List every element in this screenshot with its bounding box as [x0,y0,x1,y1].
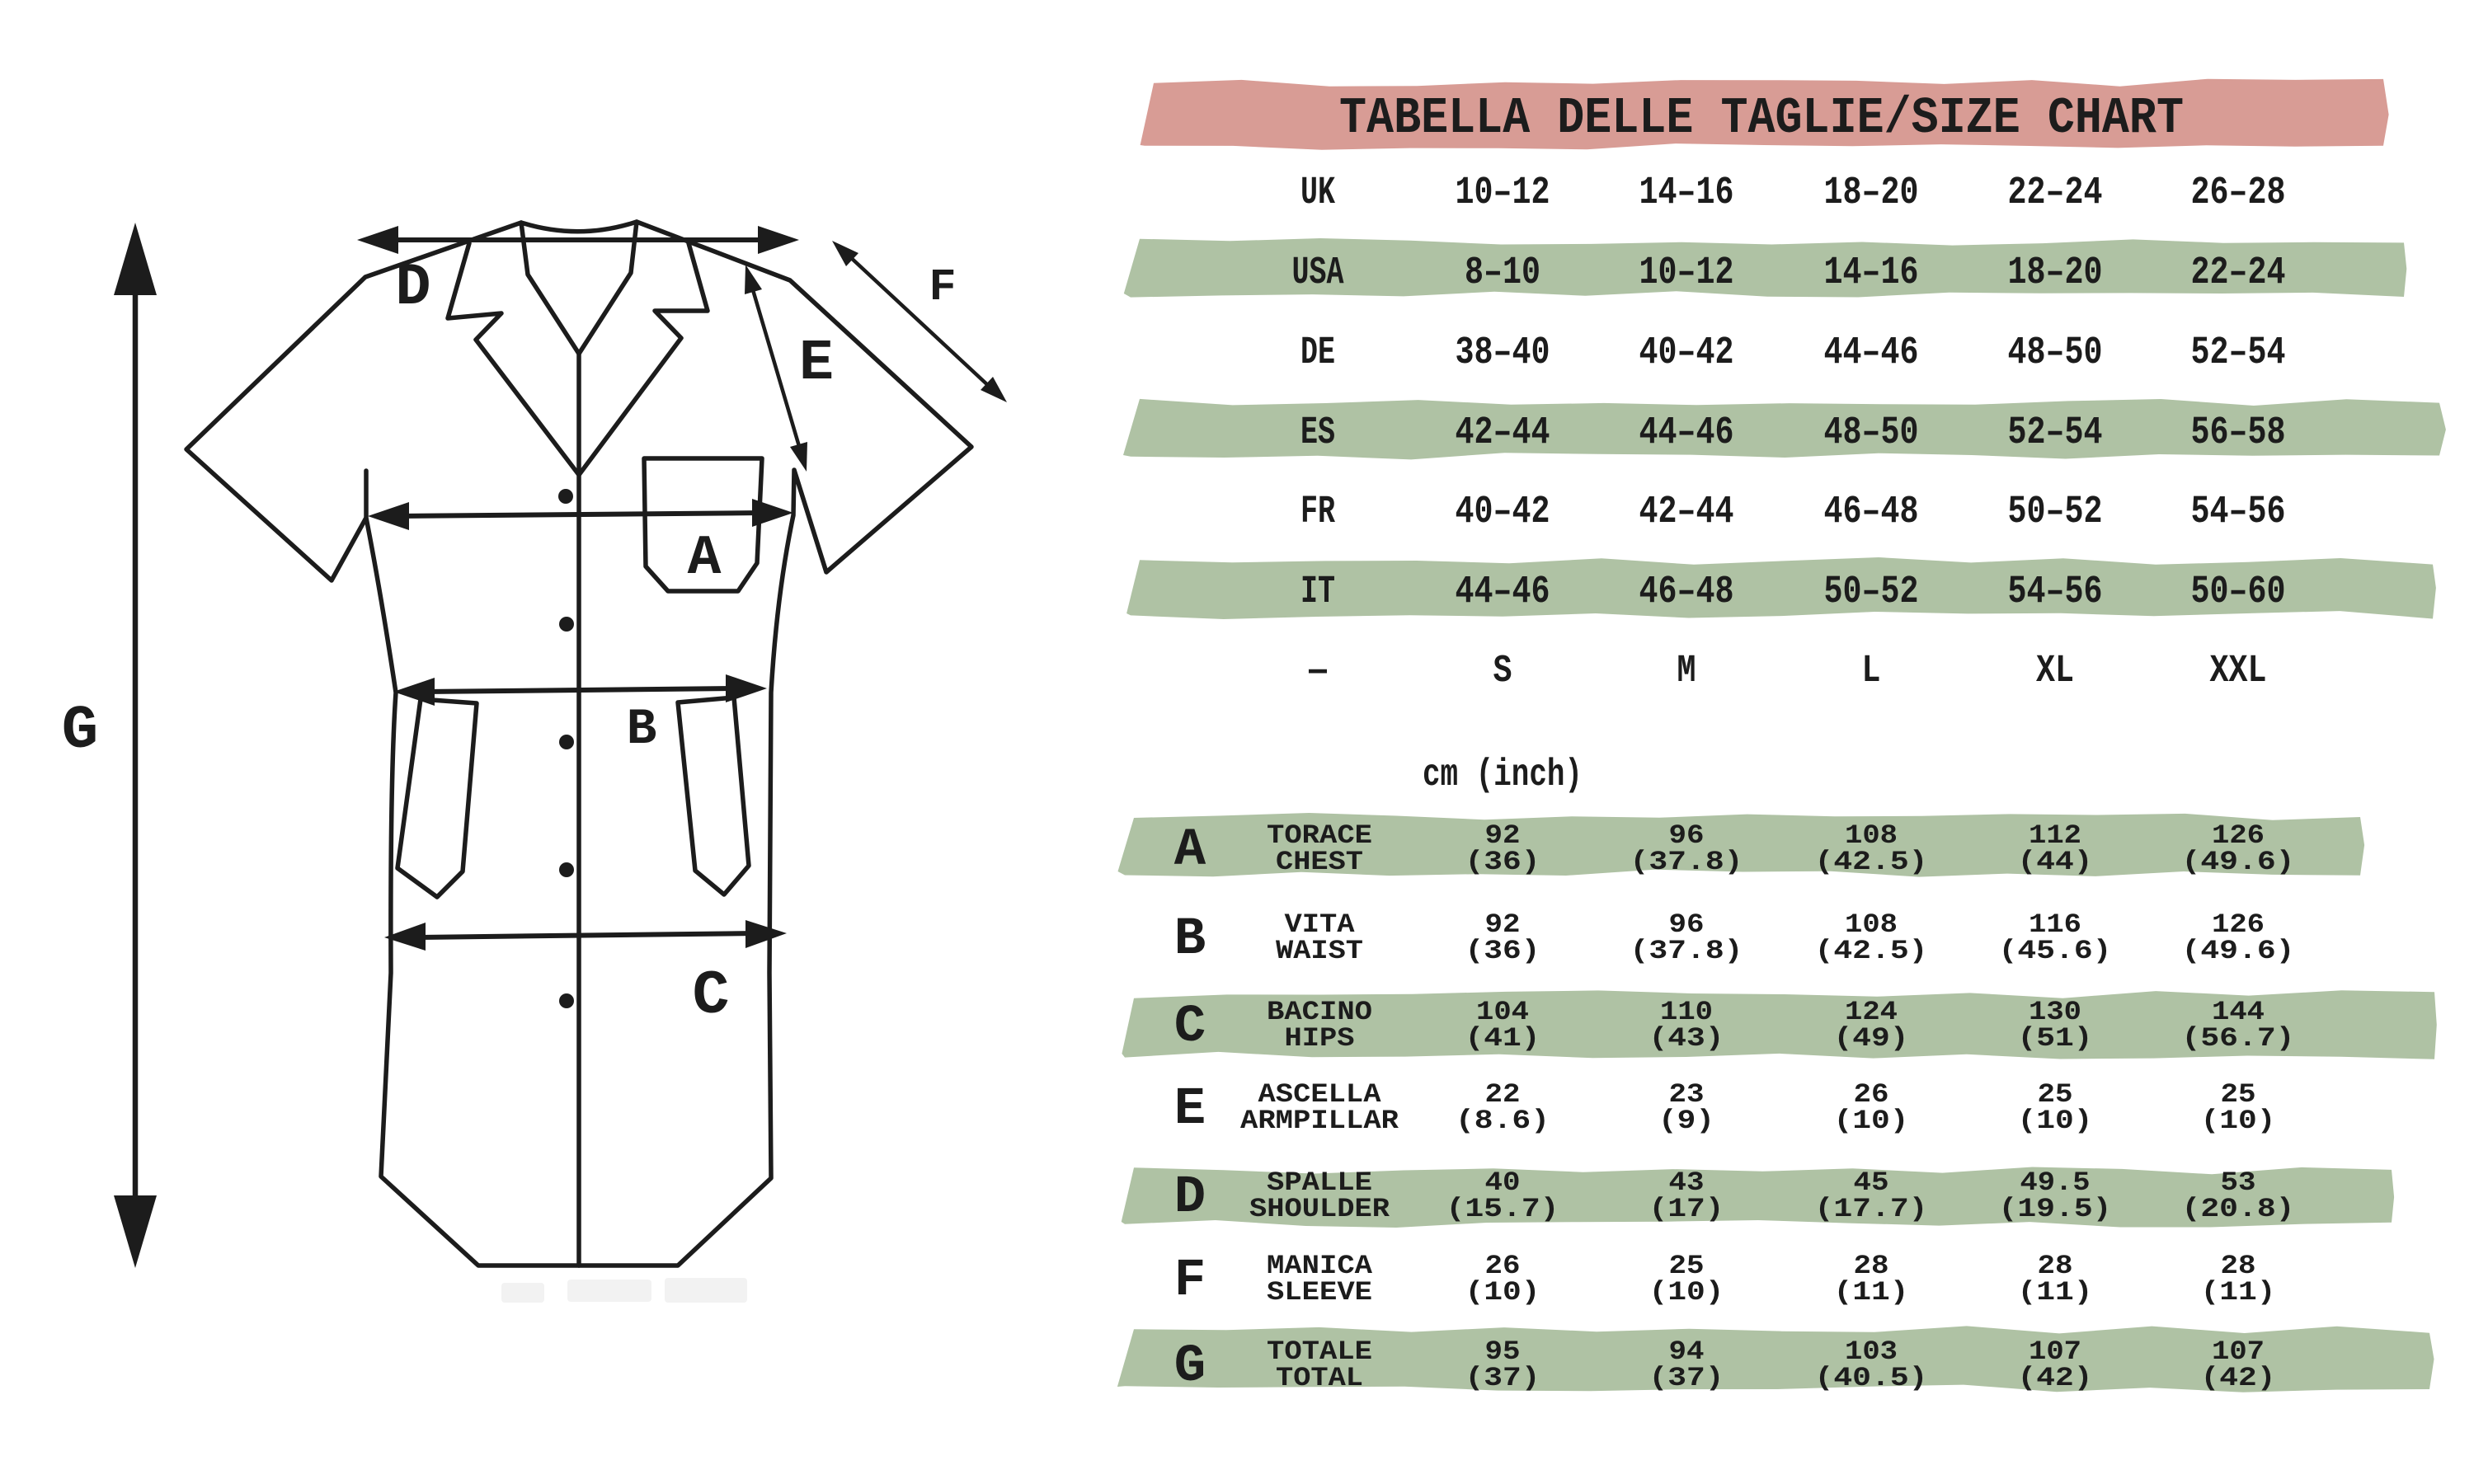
svg-text:D: D [1174,1168,1206,1228]
svg-text:14–16: 14–16 [1639,171,1734,215]
svg-text:52–54: 52–54 [2008,411,2103,455]
svg-text:XL: XL [2036,650,2074,693]
svg-text:G: G [1174,1337,1206,1397]
svg-text:(49.6): (49.6) [2182,936,2295,966]
svg-text:22–24: 22–24 [2191,251,2286,295]
svg-text:(42.5): (42.5) [1815,847,1928,877]
svg-text:–: – [1305,650,1330,693]
svg-text:(37): (37) [1465,1363,1540,1393]
svg-text:38–40: 38–40 [1456,331,1550,375]
svg-text:44–46: 44–46 [1456,571,1550,614]
svg-text:(17.7): (17.7) [1815,1194,1928,1224]
svg-text:8–10: 8–10 [1465,251,1540,295]
svg-text:56–58: 56–58 [2191,411,2286,455]
svg-text:ARMPILLAR: ARMPILLAR [1240,1106,1399,1136]
svg-text:(49.6): (49.6) [2182,847,2295,877]
svg-text:(10): (10) [1834,1106,1909,1136]
svg-text:F: F [929,261,956,313]
svg-text:E: E [799,331,834,397]
svg-text:F: F [1174,1252,1206,1311]
svg-text:TOTAL: TOTAL [1276,1363,1363,1393]
svg-text:18–20: 18–20 [2008,251,2103,295]
svg-text:(36): (36) [1465,847,1540,877]
svg-text:B: B [1174,910,1206,970]
svg-text:(20.8): (20.8) [2182,1194,2295,1224]
svg-text:A: A [1174,821,1206,881]
svg-text:(42.5): (42.5) [1815,936,1928,966]
svg-text:(8.6): (8.6) [1456,1106,1550,1136]
svg-text:46–48: 46–48 [1639,571,1734,614]
svg-text:C: C [692,961,729,1031]
svg-text:(44): (44) [2018,847,2093,877]
svg-text:C: C [1174,998,1206,1057]
svg-text:50–52: 50–52 [1824,571,1919,614]
svg-text:SLEEVE: SLEEVE [1267,1277,1372,1308]
svg-text:(11): (11) [2018,1277,2093,1308]
svg-text:(41): (41) [1465,1023,1540,1054]
svg-text:G: G [62,697,98,766]
svg-text:SHOULDER: SHOULDER [1249,1194,1390,1224]
svg-text:(11): (11) [1834,1277,1909,1308]
svg-text:(10): (10) [2201,1106,2276,1136]
svg-text:HIPS: HIPS [1285,1023,1355,1054]
svg-text:(36): (36) [1465,936,1540,966]
svg-text:TABELLA DELLE TAGLIE/SIZE CHAR: TABELLA DELLE TAGLIE/SIZE CHART [1339,89,2184,148]
svg-text:48–50: 48–50 [2008,331,2103,375]
svg-text:WAIST: WAIST [1276,936,1363,966]
svg-text:(19.5): (19.5) [1999,1194,2112,1224]
svg-text:(37.8): (37.8) [1630,936,1743,966]
svg-text:M: M [1677,650,1696,693]
svg-text:(42): (42) [2018,1363,2093,1393]
svg-text:48–50: 48–50 [1824,411,1919,455]
svg-text:(42): (42) [2201,1363,2276,1393]
svg-text:E: E [1174,1080,1206,1139]
svg-text:(56.7): (56.7) [2182,1023,2295,1054]
svg-text:USA: USA [1292,251,1345,295]
svg-text:(49): (49) [1834,1023,1909,1054]
svg-text:ES: ES [1300,411,1335,455]
svg-text:(10): (10) [1649,1277,1724,1308]
svg-text:40–42: 40–42 [1639,331,1734,375]
svg-text:54–56: 54–56 [2191,491,2286,534]
svg-text:(10): (10) [1465,1277,1540,1308]
svg-text:10–12: 10–12 [1456,171,1550,215]
svg-text:A: A [688,527,722,590]
svg-text:14–16: 14–16 [1824,251,1919,295]
svg-text:44–46: 44–46 [1824,331,1919,375]
svg-text:54–56: 54–56 [2008,571,2103,614]
svg-text:DE: DE [1300,331,1335,375]
svg-text:(43): (43) [1649,1023,1724,1054]
svg-text:22–24: 22–24 [2008,171,2103,215]
svg-text:44–46: 44–46 [1639,411,1734,455]
svg-text:(9): (9) [1658,1106,1714,1136]
svg-text:42–44: 42–44 [1639,491,1734,534]
svg-text:UK: UK [1300,171,1336,215]
svg-text:40–42: 40–42 [1456,491,1550,534]
svg-text:L: L [1862,650,1881,693]
svg-text:52–54: 52–54 [2191,331,2286,375]
svg-text:(45.6): (45.6) [1999,936,2112,966]
svg-text:(51): (51) [2018,1023,2093,1054]
svg-text:(37): (37) [1649,1363,1724,1393]
svg-text:D: D [395,254,430,322]
svg-text:42–44: 42–44 [1456,411,1550,455]
svg-text:50–60: 50–60 [2191,571,2286,614]
svg-text:10–12: 10–12 [1639,251,1734,295]
svg-text:(37.8): (37.8) [1630,847,1743,877]
svg-text:FR: FR [1300,491,1336,534]
svg-text:CHEST: CHEST [1276,847,1363,877]
svg-text:26–28: 26–28 [2191,171,2286,215]
svg-text:S: S [1493,650,1512,693]
svg-text:XXL: XXL [2210,650,2267,693]
svg-text:(15.7): (15.7) [1446,1194,1559,1224]
svg-text:18–20: 18–20 [1824,171,1919,215]
svg-text:IT: IT [1300,571,1335,614]
svg-text:46–48: 46–48 [1824,491,1919,534]
svg-text:(40.5): (40.5) [1815,1363,1928,1393]
svg-text:(10): (10) [2018,1106,2093,1136]
svg-text:B: B [627,702,657,758]
svg-text:cm (inch): cm (inch) [1423,754,1583,796]
svg-text:50–52: 50–52 [2008,491,2103,534]
svg-text:(11): (11) [2201,1277,2276,1308]
svg-text:(17): (17) [1649,1194,1724,1224]
